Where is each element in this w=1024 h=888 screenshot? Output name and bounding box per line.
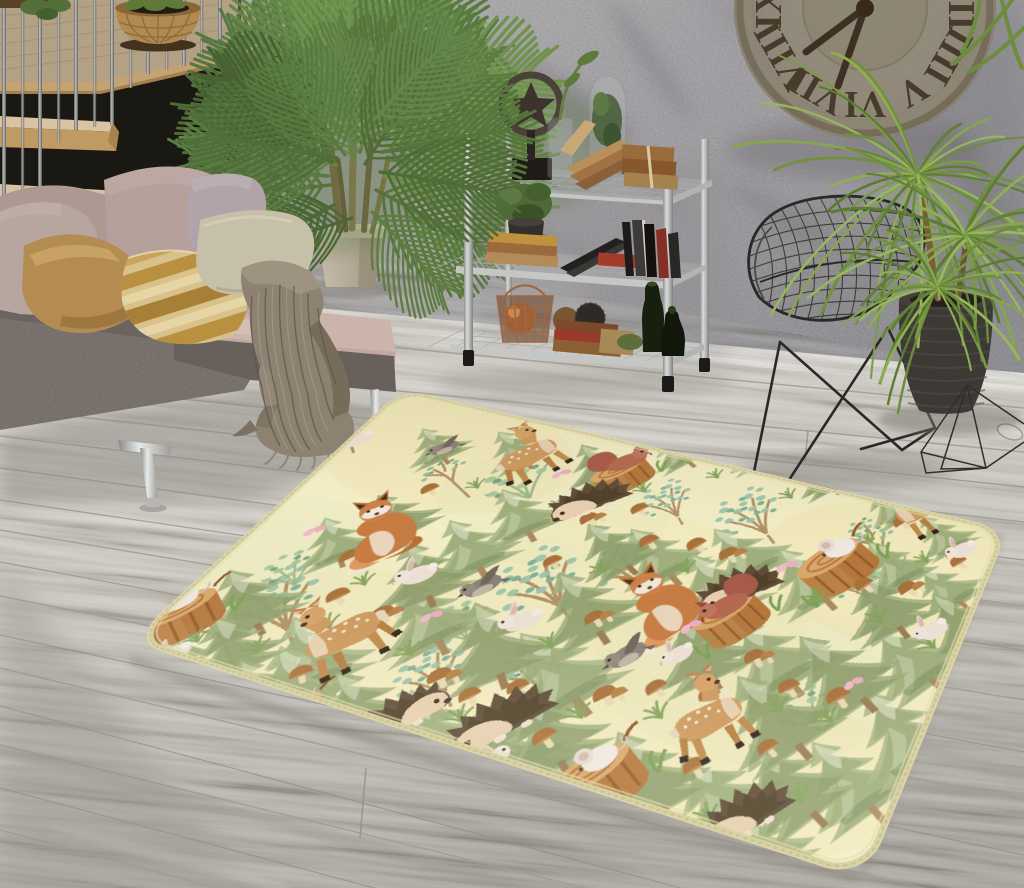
svg-text:IX: IX <box>748 0 790 29</box>
